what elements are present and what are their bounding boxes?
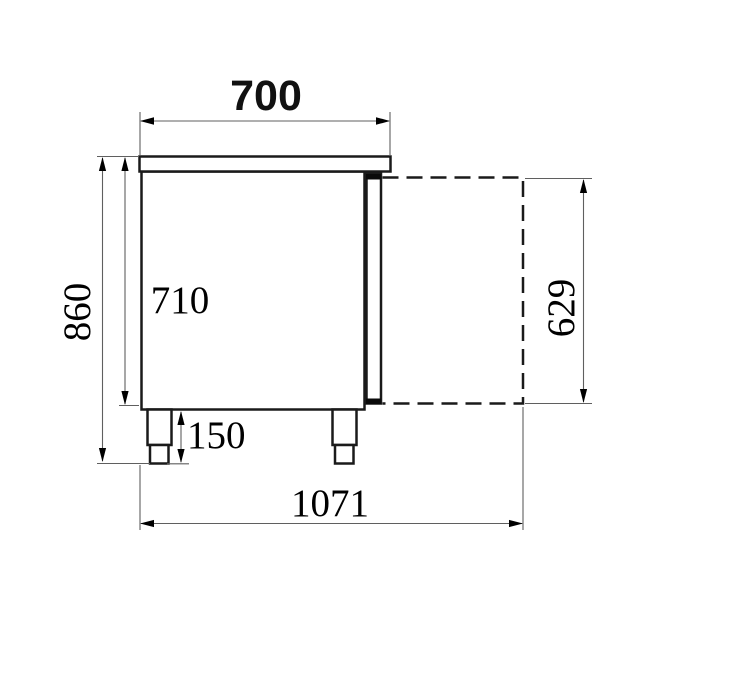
dim-150-label: 150 [187,414,246,457]
dim-860-arrow-bottom [99,448,106,462]
dim-door-open: 629 [525,179,592,404]
dim-629-label: 629 [540,279,583,338]
dim-150-arrow-top [177,411,184,425]
leg-front-upper [148,410,172,446]
dim-700-arrow-left [140,117,154,125]
dim-710-arrow-top [121,157,128,171]
leg-rear-upper [333,410,357,446]
dim-width-top: 700 [140,72,390,156]
dim-height-leg: 150 [167,411,246,464]
door-open-outline [383,178,524,404]
dim-860-arrow-top [99,157,106,171]
dim-860-label: 860 [56,283,99,342]
dim-710-label: 710 [151,279,210,322]
dim-1071-arrow-right [509,520,523,527]
door-panel [367,174,382,404]
technical-drawing-page: 700 860 710 150 [0,0,736,700]
door-hinge-bottom [366,399,381,405]
dim-629-arrow-top [580,179,587,193]
counter-side-view-drawing: 700 860 710 150 [0,0,736,700]
dim-700-arrow-right [376,117,390,125]
dim-1071-arrow-left [140,520,154,527]
door-hinge-top [366,174,381,180]
dim-1071-label: 1071 [291,482,369,525]
dim-height-total: 860 [56,157,150,464]
leg-front-foot [150,445,169,464]
leg-rear-foot [335,445,354,464]
dim-700-label: 700 [230,72,302,120]
dim-710-arrow-bottom [121,391,128,405]
dim-150-arrow-bottom [177,449,184,463]
countertop [140,157,391,172]
dim-629-arrow-bottom [580,389,587,403]
